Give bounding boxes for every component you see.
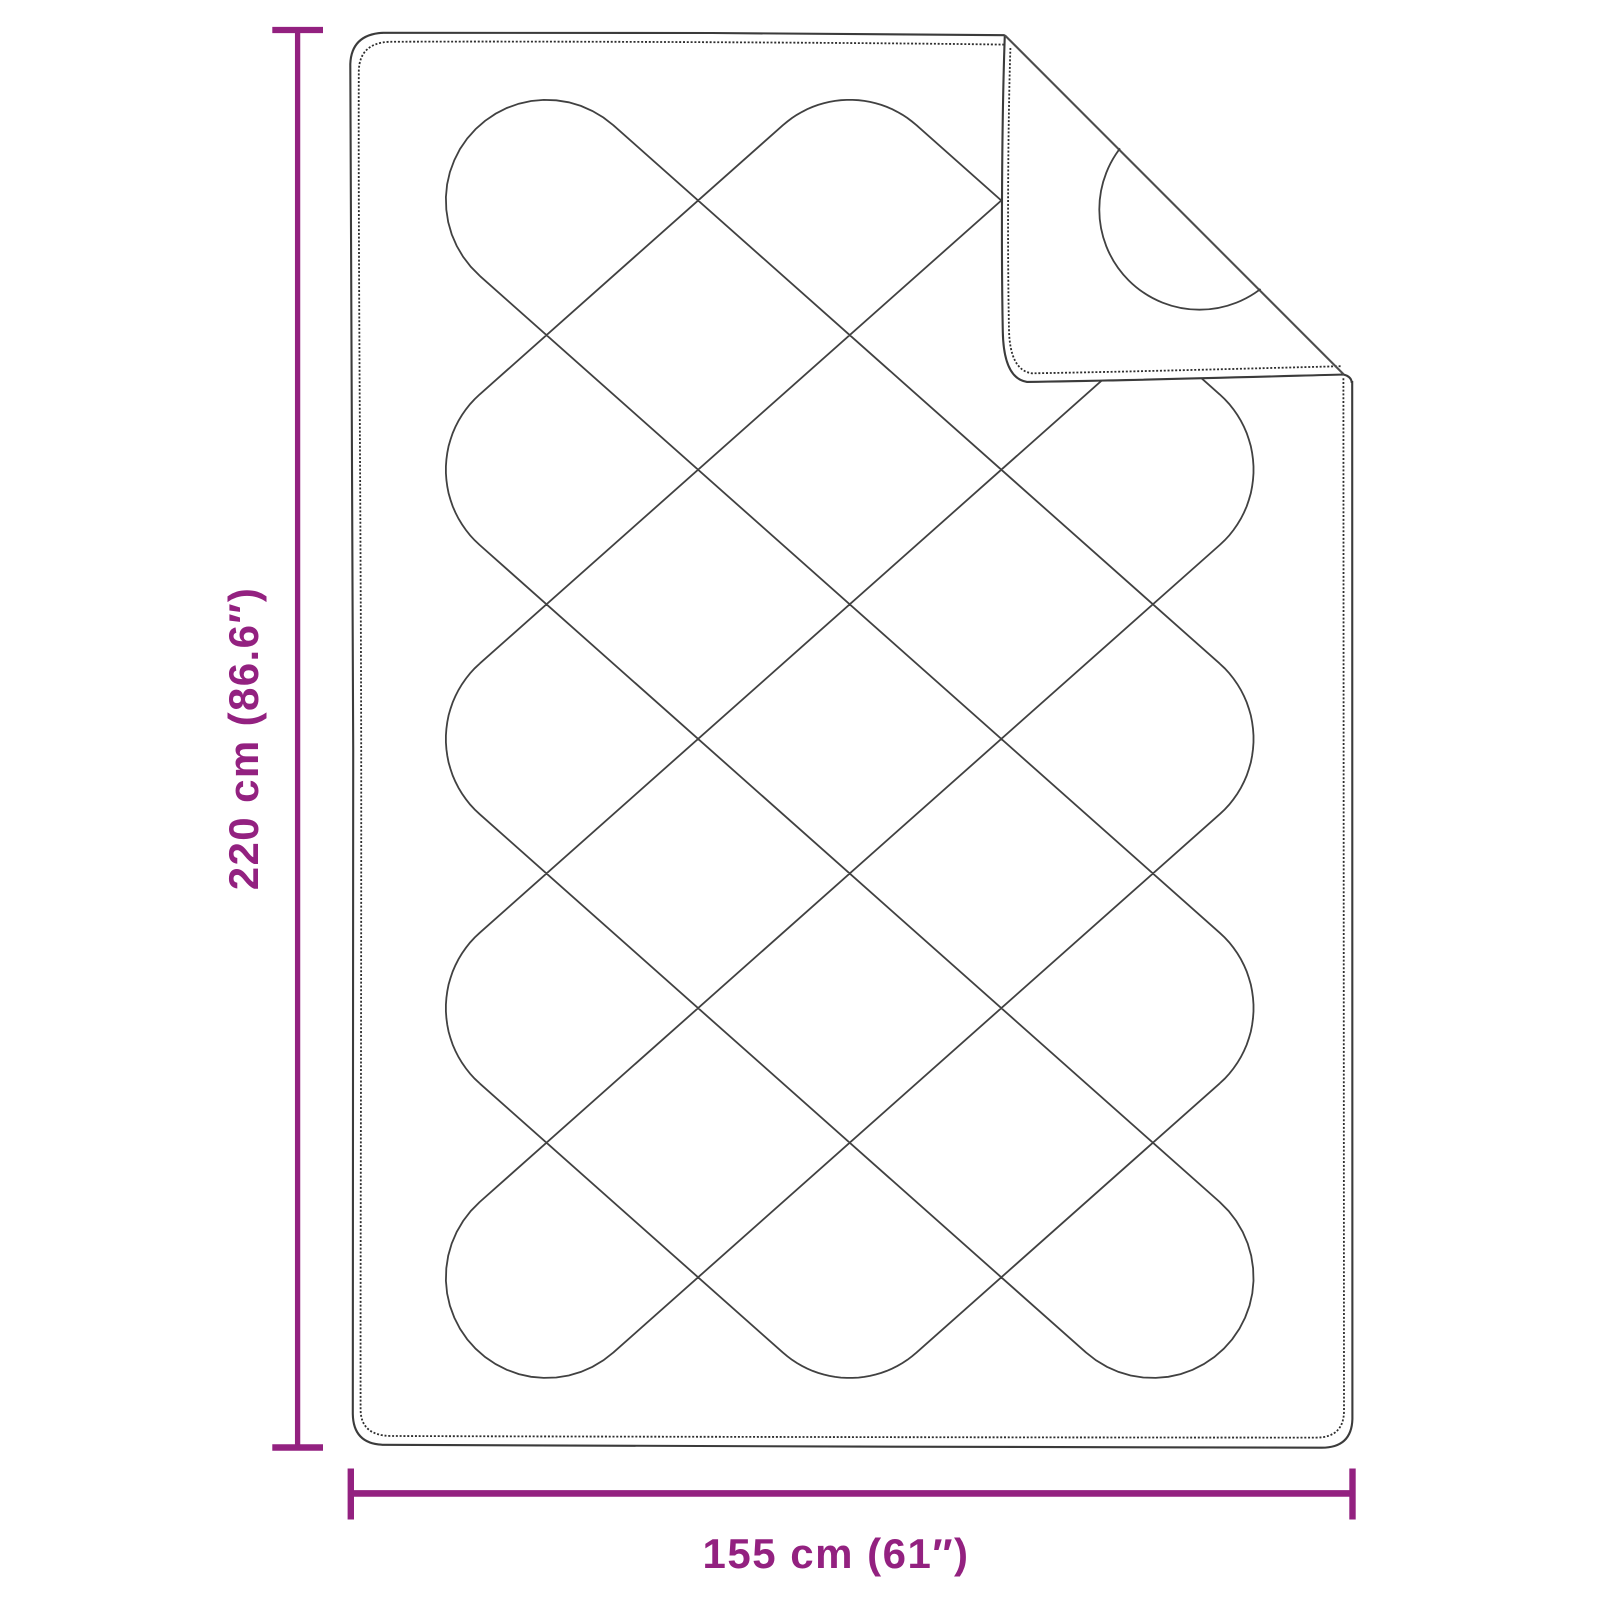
svg-text:220 cm (86.6″): 220 cm (86.6″) [220, 587, 267, 891]
svg-text:155 cm (61″): 155 cm (61″) [703, 1530, 970, 1577]
